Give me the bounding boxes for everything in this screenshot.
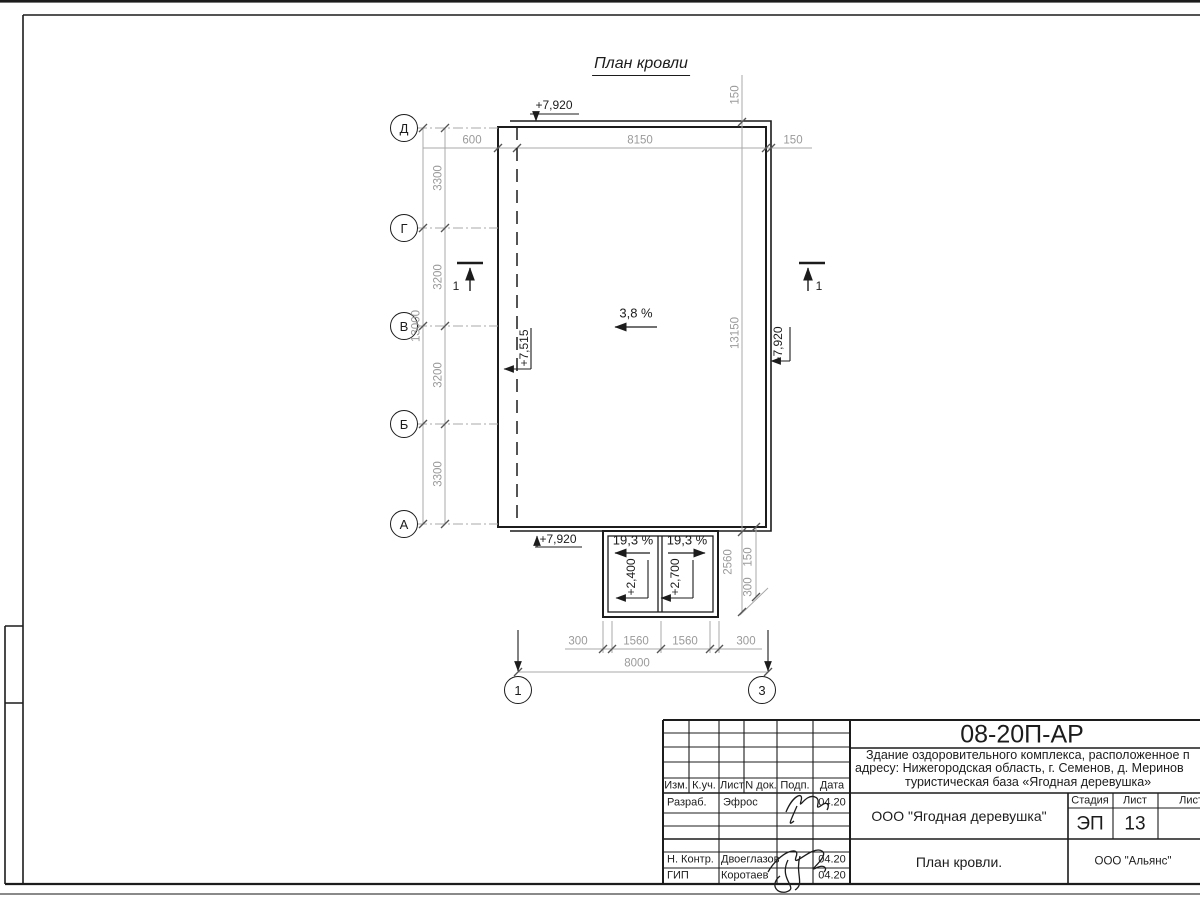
section-mark-right-label: 1 bbox=[816, 280, 823, 292]
project-name-line3: туристическая база «Ягодная деревушка» bbox=[905, 776, 1151, 789]
slope-canopy-left-label: 19,3 % bbox=[613, 534, 653, 547]
col-header-kuch: К.уч. bbox=[692, 781, 716, 792]
col-header-podp: Подп. bbox=[780, 781, 809, 792]
company-name: ООО "Альянс" bbox=[1095, 856, 1172, 868]
axis-label: А bbox=[400, 517, 409, 532]
row-nkontr-name: Двоеглазов bbox=[721, 855, 779, 866]
axis-label: Б bbox=[400, 417, 409, 432]
dim-left-3200b: 3200 bbox=[433, 362, 445, 388]
elevation-roof-top: +7,920 bbox=[535, 99, 572, 111]
dim-top-150: 150 bbox=[783, 135, 802, 147]
organization-name: ООО "Ягодная деревушка" bbox=[871, 809, 1046, 823]
stage-value: ЭП bbox=[1076, 815, 1103, 834]
row-gip-label: ГИП bbox=[667, 871, 689, 882]
col-header-ndok: N док. bbox=[745, 781, 776, 792]
elevation-canopy-left: +2,400 bbox=[625, 558, 637, 595]
dim-right-300: 300 bbox=[743, 577, 755, 596]
row-nkontr-label: Н. Контр. bbox=[667, 855, 714, 866]
project-name-line1: Здание оздоровительного комплекса, распо… bbox=[866, 749, 1190, 762]
slope-canopy-right-label: 19,3 % bbox=[667, 534, 707, 547]
dim-left-13000: 13000 bbox=[411, 310, 423, 342]
axis-label: Г bbox=[400, 221, 407, 236]
col-header-data: Дата bbox=[820, 781, 844, 792]
section-mark-left-label: 1 bbox=[453, 280, 460, 292]
dim-right-13150: 13150 bbox=[730, 317, 742, 349]
stage-header: Стадия bbox=[1071, 796, 1109, 807]
dim-left-3300a: 3300 bbox=[433, 165, 445, 191]
dim-top-8150: 8150 bbox=[627, 135, 653, 147]
row-razrab-label: Разраб. bbox=[667, 798, 707, 809]
elevation-canopy-right: +2,700 bbox=[669, 558, 681, 595]
elevation-roof-right: +7,920 bbox=[772, 326, 784, 363]
axis-circle-a: А bbox=[390, 510, 418, 538]
slope-main-label: 3,8 % bbox=[619, 307, 652, 320]
dim-right-150-top: 150 bbox=[730, 85, 742, 104]
project-name-line2: адресу: Нижегородская область, г. Семено… bbox=[855, 762, 1184, 775]
drawing-sheet: План кровли Д Г В Б А 1 3 600 8150 150 3… bbox=[0, 0, 1200, 900]
row-gip-name: Коротаев bbox=[721, 871, 769, 882]
axis-circle-b: Б bbox=[390, 410, 418, 438]
axis-label: 1 bbox=[514, 683, 521, 698]
title-block-code: 08-20П-АР bbox=[960, 723, 1084, 748]
dim-left-3300b: 3300 bbox=[433, 461, 445, 487]
row-gip-date: 04.20 bbox=[818, 871, 846, 882]
elevation-roof-bottom: +7,920 bbox=[539, 533, 576, 545]
sheet-header: Лист bbox=[1123, 796, 1147, 807]
row-razrab-date: 04.20 bbox=[818, 798, 846, 809]
axis-label: 3 bbox=[758, 683, 765, 698]
sheet-title: План кровли. bbox=[916, 855, 1002, 869]
dim-right-2560: 2560 bbox=[723, 549, 735, 575]
dim-top-600: 600 bbox=[462, 135, 481, 147]
elevation-roof-left: +7,515 bbox=[518, 329, 530, 366]
col-header-izm: Изм. bbox=[664, 781, 688, 792]
axis-circle-1: 1 bbox=[504, 676, 532, 704]
dim-bottom-1560l: 1560 bbox=[623, 636, 649, 648]
sheet-number: 13 bbox=[1124, 815, 1145, 834]
dim-bottom-300l: 300 bbox=[568, 636, 587, 648]
drawing-title: План кровли bbox=[592, 56, 690, 76]
row-razrab-name: Эфрос bbox=[723, 798, 758, 809]
axis-circle-g: Г bbox=[390, 214, 418, 242]
dim-bottom-300r: 300 bbox=[736, 636, 755, 648]
axis-circle-3: 3 bbox=[748, 676, 776, 704]
axis-circle-d: Д bbox=[390, 114, 418, 142]
axis-label: В bbox=[400, 319, 409, 334]
sheets-header: Листов bbox=[1179, 796, 1200, 807]
col-header-list: Лист bbox=[720, 781, 744, 792]
dim-right-150: 150 bbox=[743, 547, 755, 566]
dim-left-3200a: 3200 bbox=[433, 264, 445, 290]
row-nkontr-date: 04.20 bbox=[818, 855, 846, 866]
dim-bottom-8000: 8000 bbox=[624, 658, 650, 670]
axis-label: Д bbox=[400, 121, 409, 136]
dim-bottom-1560r: 1560 bbox=[672, 636, 698, 648]
